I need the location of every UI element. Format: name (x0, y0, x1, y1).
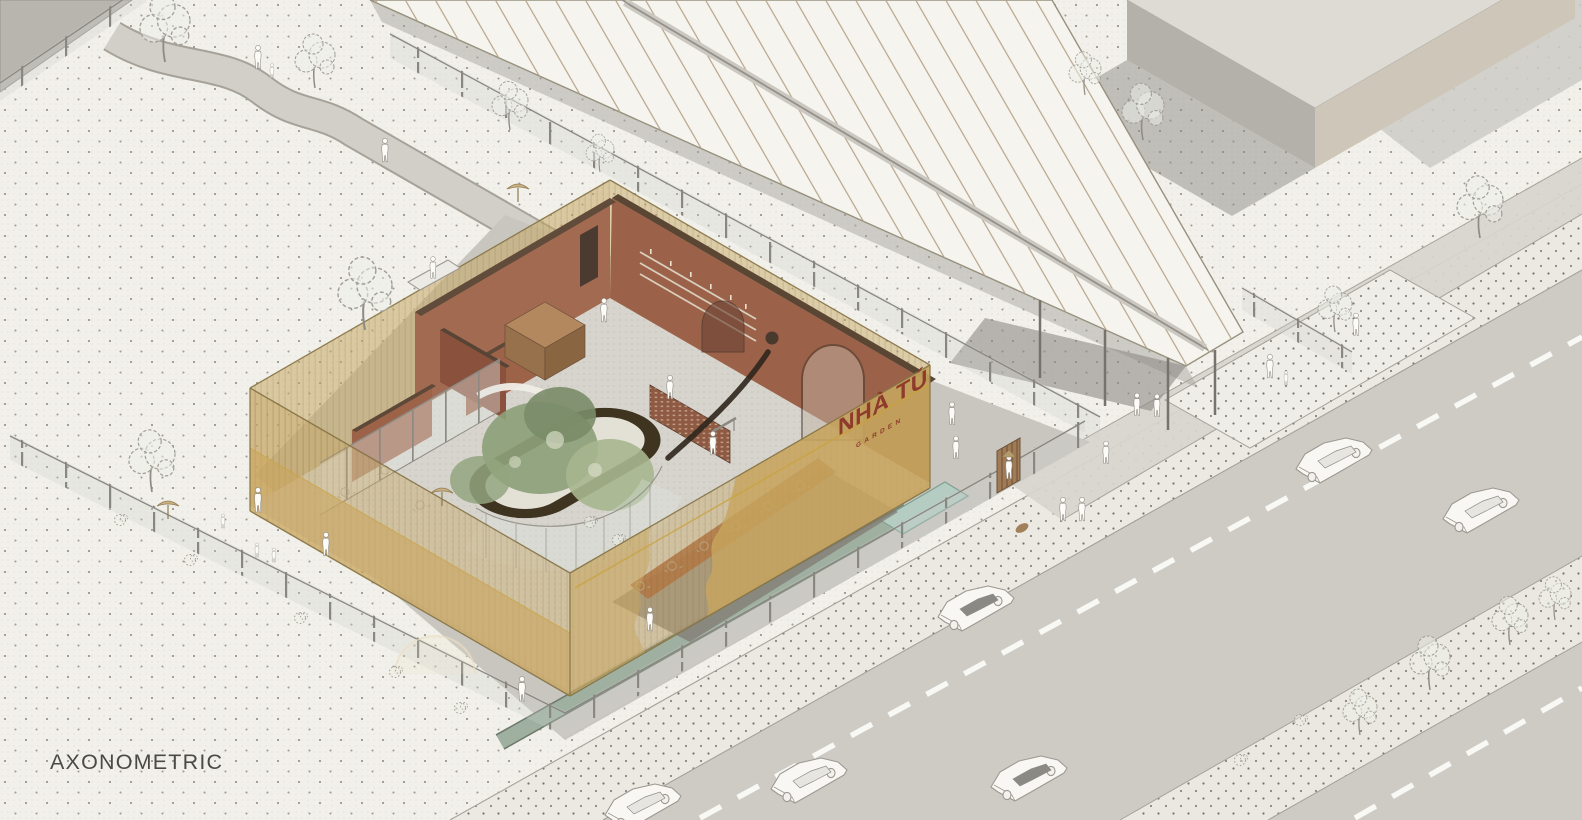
porthole (766, 332, 779, 345)
axonometric-drawing: NHÀ TÚ GARDEN (0, 0, 1582, 820)
arch-niche (702, 301, 744, 352)
drawing-title: AXONOMETRIC (50, 750, 223, 774)
door (580, 225, 598, 287)
